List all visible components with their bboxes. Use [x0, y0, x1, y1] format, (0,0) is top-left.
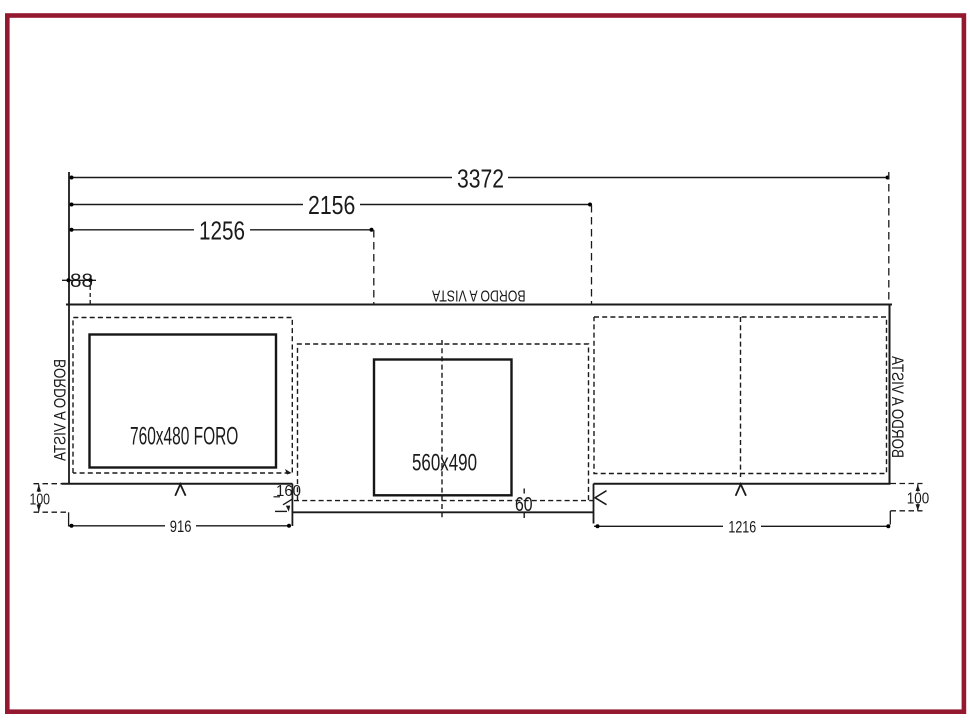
svg-text:BORDO A VISTA: BORDO A VISTA — [888, 355, 907, 458]
svg-text:2156: 2156 — [308, 190, 355, 220]
svg-text:1216: 1216 — [728, 518, 756, 537]
svg-text:916: 916 — [170, 517, 192, 536]
svg-text:BORDO A VISTA: BORDO A VISTA — [432, 287, 526, 304]
svg-text:3372: 3372 — [457, 164, 504, 194]
svg-text:760x480 FORO: 760x480 FORO — [130, 423, 238, 451]
svg-text:160: 160 — [276, 483, 301, 500]
svg-text:60: 60 — [515, 494, 533, 516]
svg-text:560x490: 560x490 — [412, 449, 477, 476]
svg-text:100: 100 — [30, 491, 51, 508]
svg-text:1256: 1256 — [199, 215, 245, 245]
svg-text:100: 100 — [907, 491, 929, 508]
svg-text:BORDO A VISTA: BORDO A VISTA — [51, 359, 70, 462]
